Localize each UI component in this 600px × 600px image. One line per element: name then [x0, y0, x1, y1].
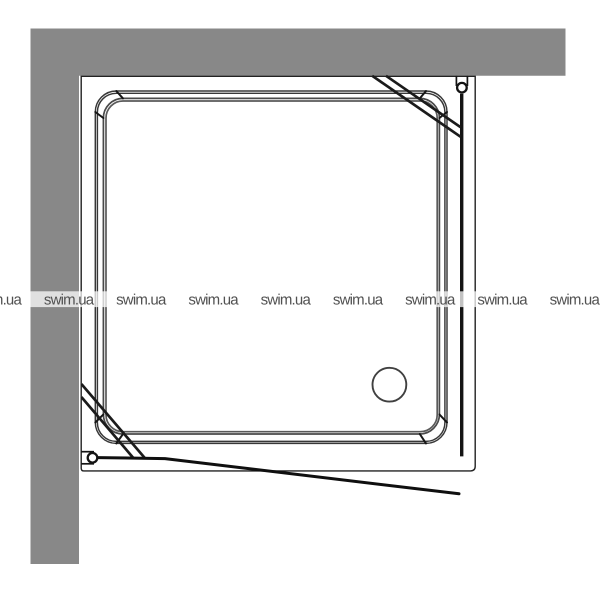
svg-text:swim.ua: swim.ua	[550, 291, 600, 308]
svg-text:swim.ua: swim.ua	[188, 291, 239, 308]
svg-text:swim.ua: swim.ua	[333, 291, 384, 308]
svg-text:swim.ua: swim.ua	[44, 291, 95, 308]
svg-text:swim.ua: swim.ua	[0, 291, 22, 308]
svg-text:swim.ua: swim.ua	[116, 291, 167, 308]
svg-text:swim.ua: swim.ua	[261, 291, 312, 308]
svg-text:swim.ua: swim.ua	[477, 291, 528, 308]
svg-text:swim.ua: swim.ua	[405, 291, 456, 308]
